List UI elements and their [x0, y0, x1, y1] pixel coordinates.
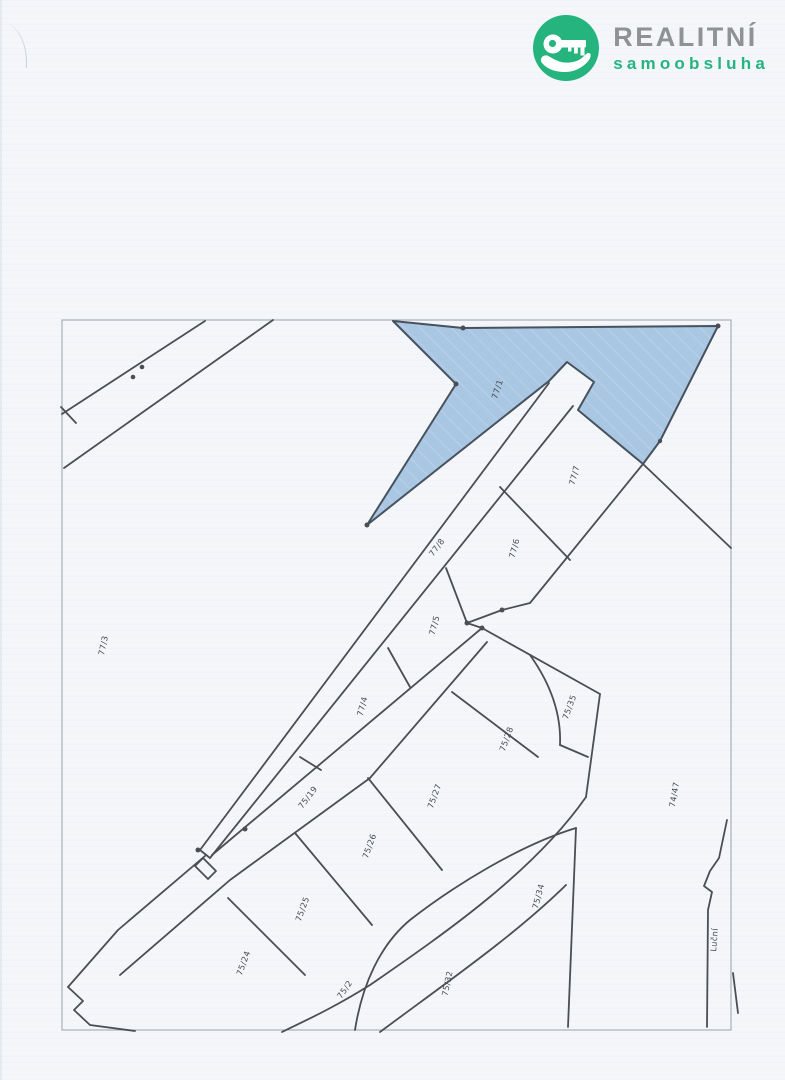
parcel-77-1-highlight: [367, 321, 718, 525]
parcel-label-75-19: 75/19: [296, 784, 319, 810]
parcel-label-75-25: 75/25: [293, 895, 311, 922]
parcel-label-77-7: 77/7: [567, 464, 582, 486]
scanned-page: REALITNÍ samoobsluha: [0, 0, 785, 1080]
parcel-label-75-24: 75/24: [234, 949, 252, 976]
street-label-lu-n-: Luční: [708, 927, 720, 952]
parcel-label-75-27: 75/27: [425, 782, 443, 809]
parcel-label-77-4: 77/4: [355, 695, 370, 717]
parcel-label-75-32: 75/32: [440, 970, 455, 997]
parcel-label-77-3: 77/3: [96, 635, 110, 657]
parcel-label-74-47: 74/47: [667, 781, 681, 808]
parcel-label-75-26: 75/26: [360, 832, 378, 859]
parcel-label-75-35: 75/35: [560, 693, 578, 720]
parcel-label-75-28: 75/28: [497, 725, 515, 752]
parcel-label-77-5: 77/5: [427, 614, 442, 636]
parcel-label-77-6: 77/6: [507, 537, 522, 559]
cadastral-map: 77/177/777/677/877/577/477/375/1975/3575…: [0, 0, 785, 1080]
parcel-label-77-8: 77/8: [427, 536, 447, 558]
